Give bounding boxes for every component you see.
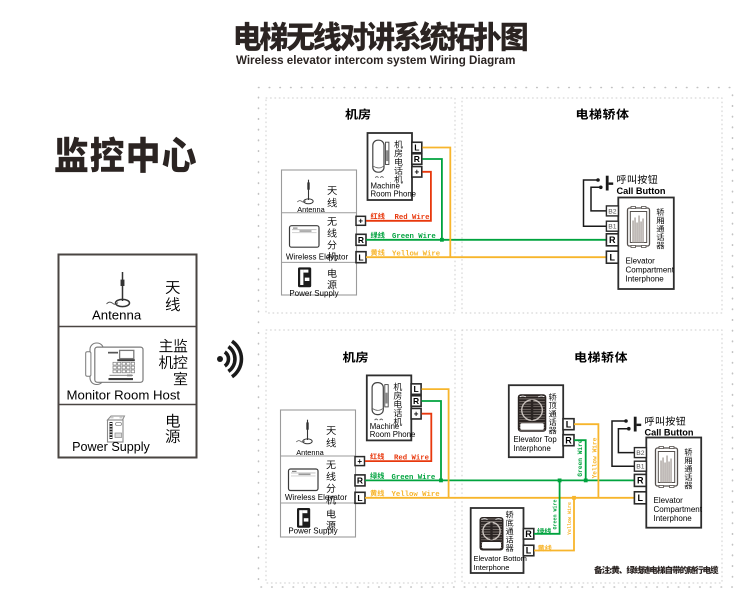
svg-text:Power Supply: Power Supply [72,440,150,454]
svg-text:Room Phone: Room Phone [370,430,416,439]
svg-text:R: R [413,396,419,406]
svg-text:L: L [610,252,616,262]
svg-text:Room Phone: Room Phone [371,190,417,199]
svg-text:Elevator Top: Elevator Top [514,435,558,444]
svg-text:Power Supply: Power Supply [288,526,337,535]
svg-text:+: + [414,410,419,419]
svg-text:Elevator Bottom: Elevator Bottom [474,554,527,563]
svg-text:Elevator: Elevator [654,496,684,505]
svg-text:B1: B1 [636,464,645,471]
svg-text:Wireless Elevator: Wireless Elevator [285,493,348,502]
svg-text:Green Wire: Green Wire [577,439,584,476]
svg-text:Interphone: Interphone [514,444,551,453]
svg-text:L: L [414,143,419,153]
svg-text:R: R [565,435,572,445]
svg-text:+: + [357,457,362,466]
svg-text:Yellow Wire: Yellow Wire [567,502,573,535]
svg-text:L: L [357,493,362,503]
svg-text:Wireless Elevator: Wireless Elevator [286,253,349,262]
svg-text:R: R [414,154,420,164]
svg-text:Call Button: Call Button [617,186,666,196]
svg-text:B2: B2 [608,208,617,215]
svg-text:Wireless elevator intercom sys: Wireless elevator intercom system Wiring… [236,54,515,67]
svg-text:Interphone: Interphone [626,275,665,284]
svg-text:Compartment: Compartment [654,505,703,514]
svg-text:Power Supply: Power Supply [289,289,338,298]
svg-text:Red Wire: Red Wire [395,214,431,222]
svg-text:R: R [525,529,532,539]
svg-text:Yellow Wire: Yellow Wire [392,491,441,499]
svg-text:Elevator: Elevator [626,257,656,266]
svg-text:L: L [526,546,532,556]
svg-text:L: L [566,419,572,429]
svg-text:Antenna: Antenna [92,308,142,323]
svg-text:B2: B2 [636,450,645,457]
svg-text:Antenna: Antenna [296,448,324,457]
svg-text:L: L [638,493,644,503]
svg-text:Green Wire: Green Wire [392,474,436,482]
svg-text:Green Wire: Green Wire [392,233,436,241]
svg-text:Compartment: Compartment [626,266,675,275]
svg-text:Monitor Room Host: Monitor Room Host [67,388,181,403]
svg-text:Yellow Wire: Yellow Wire [392,251,441,259]
svg-text:R: R [358,235,364,245]
svg-text:Antenna: Antenna [297,205,325,214]
svg-text:L: L [358,252,363,262]
svg-text:Interphone: Interphone [654,514,693,523]
svg-text:R: R [637,476,644,486]
svg-text:Green Wire: Green Wire [553,499,559,529]
svg-text:B1: B1 [608,224,617,231]
svg-text:R: R [609,235,616,245]
svg-text:Yellow Wire: Yellow Wire [592,437,599,478]
svg-text:Interphone: Interphone [474,563,510,572]
svg-text:Red Wire: Red Wire [394,455,430,463]
svg-text:+: + [414,168,419,177]
svg-text:+: + [358,217,363,226]
svg-text:R: R [357,475,363,485]
svg-text:Call Button: Call Button [645,428,694,438]
svg-text:L: L [413,384,418,394]
